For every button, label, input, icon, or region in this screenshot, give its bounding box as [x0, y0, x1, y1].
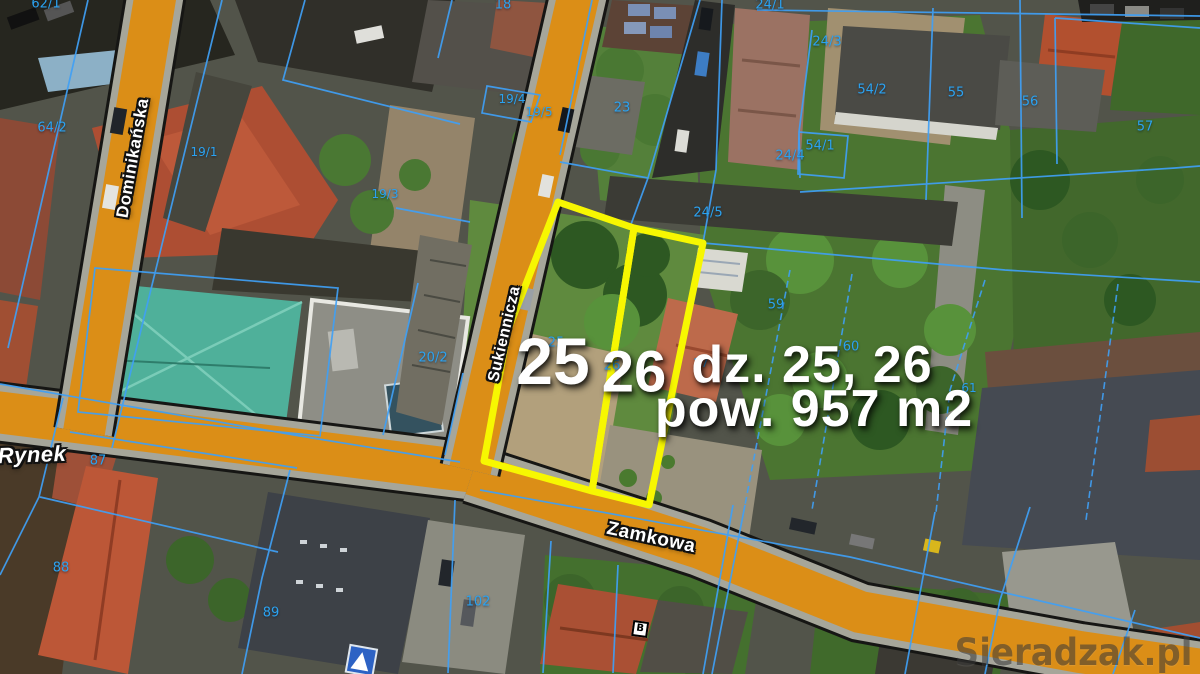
- parcel-25-highlight-label: 25: [516, 323, 589, 399]
- aerial-photo-layer: [0, 0, 1200, 674]
- watermark: Sieradzak.pl: [954, 631, 1192, 674]
- annotation-area-line: pow. 957 m2: [655, 379, 973, 439]
- aerial-map-image: 62/164/219/119/31819/419/52324/124/354/2…: [0, 0, 1200, 674]
- pedestrian-crossing-sign-icon: [346, 645, 377, 674]
- building-letter-label: B: [631, 620, 649, 638]
